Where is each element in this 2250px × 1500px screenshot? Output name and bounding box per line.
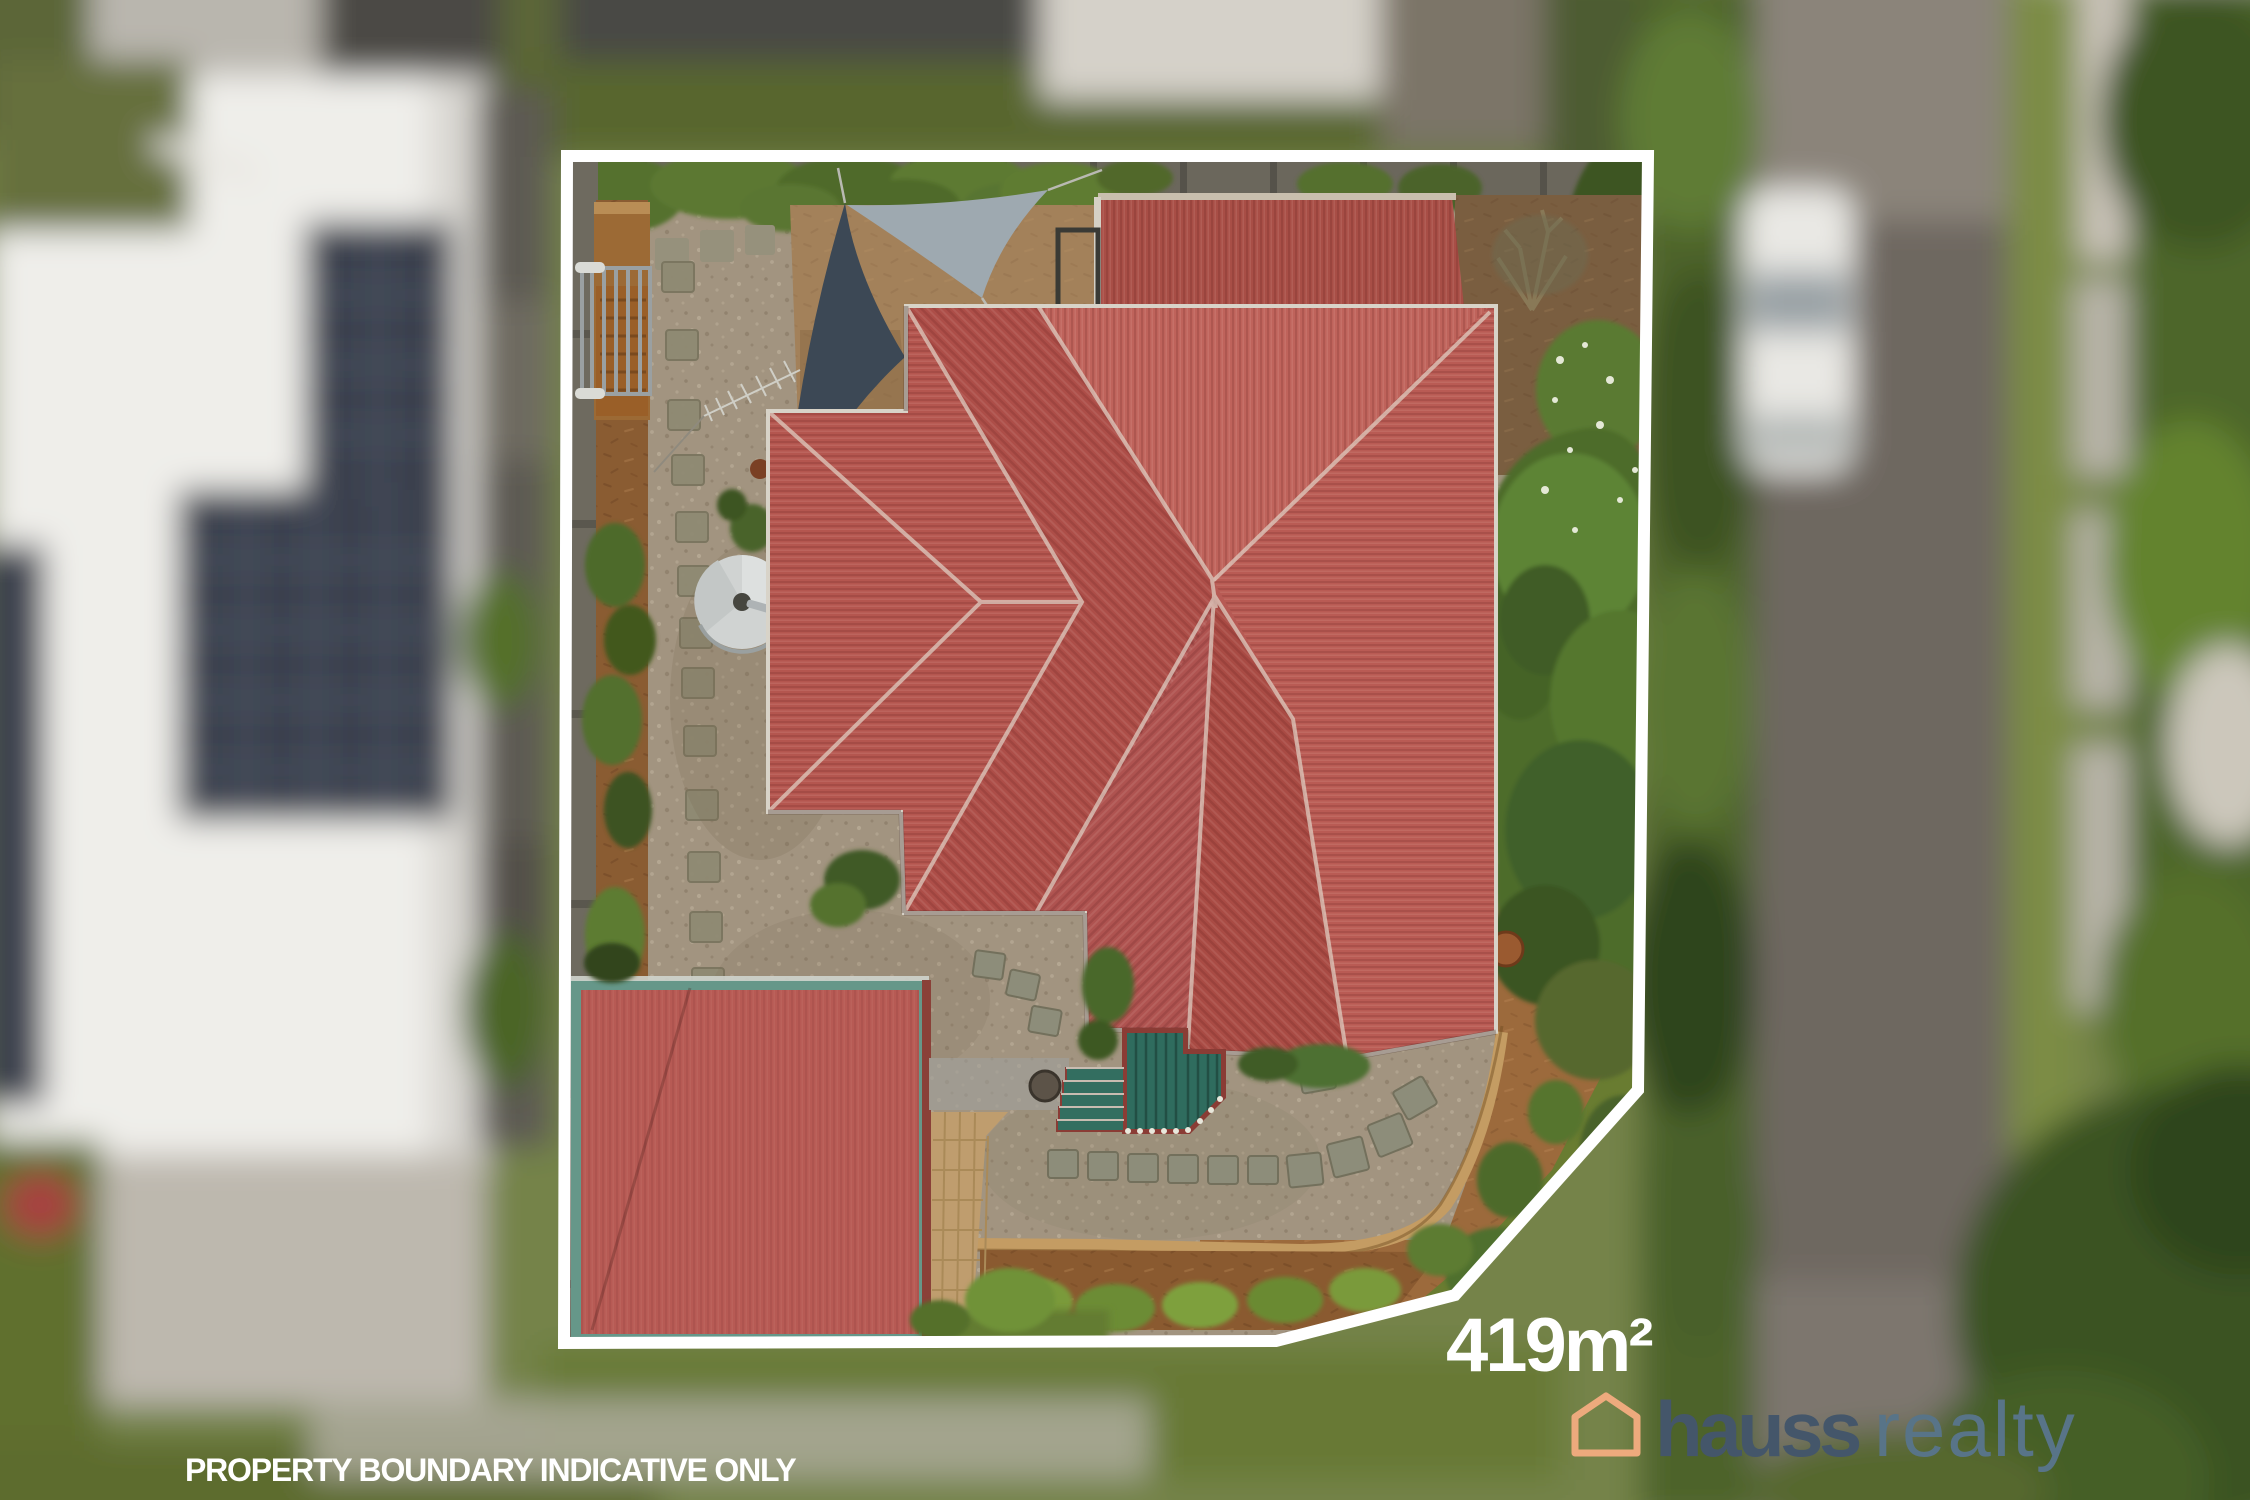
svg-text:hauss: hauss bbox=[1655, 1385, 1860, 1473]
svg-text:419m²: 419m² bbox=[1446, 1303, 1652, 1388]
svg-text:realty: realty bbox=[1874, 1385, 2077, 1473]
svg-text:PROPERTY BOUNDARY INDICATIVE O: PROPERTY BOUNDARY INDICATIVE ONLY bbox=[185, 1452, 796, 1488]
